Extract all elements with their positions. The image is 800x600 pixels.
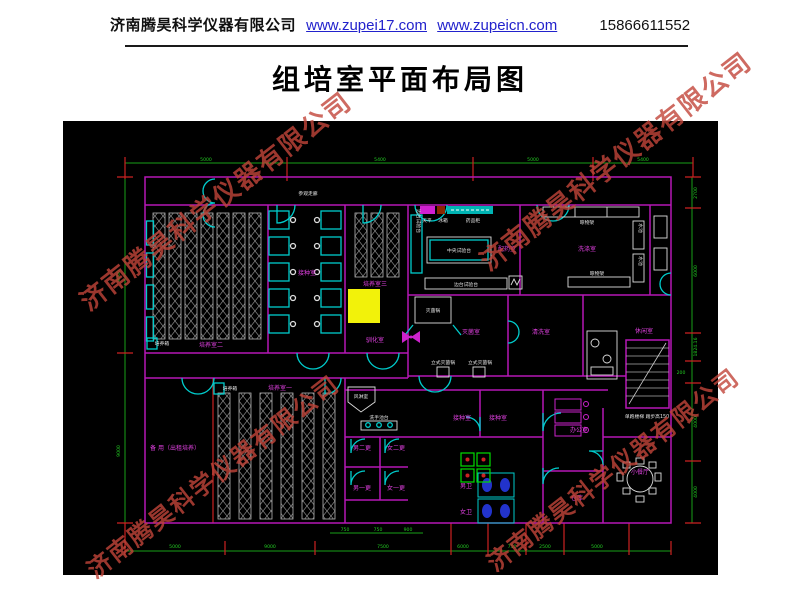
plan-label: 5400 [637, 157, 649, 163]
label-inoculation-room-a: 接种室 [453, 414, 471, 422]
laminar-hood [321, 237, 341, 255]
plan-label: 药品柜 [466, 217, 481, 224]
plan-label: 晾物架 [580, 219, 595, 226]
label-rinse-room: 清洗室 [532, 328, 550, 336]
culture-racks [153, 213, 399, 519]
plan-label: 4000 [693, 416, 699, 428]
plan-label: 5000 [200, 157, 212, 163]
plan-label: 200 [677, 370, 686, 376]
prep-room-icons [420, 206, 493, 214]
label-inoculation-room-b: 接种室 [489, 414, 507, 422]
label-media-prep-room: 配药室 [498, 245, 516, 253]
incubator [147, 253, 154, 277]
label-sterilization-room: 灭菌室 [462, 328, 480, 336]
label-culture-room-2: 培养室二 [199, 341, 223, 349]
incubator [147, 221, 154, 245]
plan-label: 750 [508, 544, 517, 550]
label-viewing-corridor: 参观走廊 [298, 190, 317, 197]
label-women-toilet: 女卫 [460, 508, 472, 516]
label-dining-room: 小餐厅 [631, 468, 649, 476]
label-spare-room: 备 用（出租培养） [150, 444, 200, 452]
plan-label: 2500 [539, 544, 551, 550]
plan-label: 4000 [693, 486, 699, 498]
plan-label: 边台试验台 [415, 209, 422, 233]
laminar-hood [269, 263, 289, 281]
drying-rack [568, 277, 630, 287]
label-acclimation-room: 驯化室 [366, 336, 384, 344]
incubator [147, 285, 154, 309]
drying-rack [543, 207, 639, 217]
label-storage: 仓库 [571, 494, 583, 502]
plan-label: 1824.16 [693, 337, 699, 356]
company-name: 济南腾昊科学仪器有限公司 [110, 17, 296, 34]
plan-label: 单跑楼梯 踏步高150 [625, 413, 669, 420]
plan-label: 灭菌锅 [426, 307, 441, 314]
plan-label: 5000 [591, 544, 603, 550]
link-zupeicn[interactable]: www.zupeicn.com [437, 17, 557, 34]
laminar-hood [321, 289, 341, 307]
laminar-hood [321, 315, 341, 333]
plan-label: 天平 [422, 218, 432, 224]
laminar-hood [269, 237, 289, 255]
laminar-hood [269, 315, 289, 333]
link-zupei17[interactable]: www.zupei17.com [306, 17, 427, 34]
toilet-fixtures [478, 473, 514, 523]
plan-label: 培养箱 [223, 385, 238, 392]
label-culture-room-3: 培养室三 [363, 280, 387, 288]
plan-label: 9000 [116, 270, 122, 282]
plan-label: 750 [341, 527, 350, 533]
fan-symbol [402, 331, 420, 343]
plan-label: 培养箱 [155, 340, 170, 347]
label-women-change-2: 女二更 [387, 444, 405, 452]
plan-label: 6000 [457, 544, 469, 550]
plan-label: 晾物架 [590, 270, 605, 277]
plan-label: 冰箱 [438, 217, 448, 224]
plan-label: 5400 [374, 157, 386, 163]
plan-label: 750 [374, 527, 383, 533]
header-divider [125, 45, 688, 47]
plan-label: 立式灭菌锅 [431, 359, 455, 366]
page-title: 组培室平面布局图 [0, 58, 800, 98]
laminar-hood [269, 289, 289, 307]
plan-label: 水池 [637, 256, 644, 266]
plan-label: 风淋室 [354, 393, 369, 400]
plan-label: 水池 [637, 223, 644, 233]
slide-background: 济南腾昊科学仪器有限公司 www.zupei17.com www.zupeicn… [0, 0, 800, 600]
laminar-hood [321, 211, 341, 229]
label-women-change-1: 女一更 [387, 484, 405, 492]
plan-label: 边台试验台 [454, 281, 478, 288]
plan-label: 7500 [377, 544, 389, 550]
water-purifier [587, 331, 617, 379]
plan-label: 9000 [116, 445, 122, 457]
label-men-toilet: 男卫 [460, 483, 472, 490]
phone-number: 15866611552 [599, 17, 690, 34]
highlight-rect [348, 289, 380, 323]
laminar-hood [321, 263, 341, 281]
header: 济南腾昊科学仪器有限公司 www.zupei17.com www.zupeicn… [0, 14, 800, 35]
staircase [626, 343, 669, 404]
plan-label: 6000 [693, 265, 699, 277]
plan-label: 5000 [169, 544, 181, 550]
label-culture-room-1: 培养室一 [268, 384, 292, 392]
green-equipment [461, 453, 490, 482]
label-washing-room: 洗涤室 [578, 245, 596, 253]
plan-label: 9000 [264, 544, 276, 550]
plan-label: 2700 [693, 187, 699, 199]
plan-label: 立式灭菌锅 [468, 359, 492, 366]
plan-label: 洗手池台 [369, 414, 388, 421]
label-office: 办公室 [570, 426, 588, 434]
label-lounge: 休闲室 [635, 327, 653, 335]
label-men-change-1: 男一更 [353, 485, 371, 492]
label-men-change-2: 男二更 [353, 445, 371, 452]
floor-plan-canvas: 参观走廊培养室二接种室培养室三驯化室培养室一备 用（出租培养）配药室洗涤室灭菌室… [63, 121, 718, 575]
plan-label: 中央试验台 [447, 247, 471, 254]
floor-plan-svg: 参观走廊培养室二接种室培养室三驯化室培养室一备 用（出租培养）配药室洗涤室灭菌室… [63, 121, 718, 575]
plan-label: 5000 [527, 157, 539, 163]
plan-label: 900 [404, 527, 413, 533]
label-inoculation-room: 接种室 [298, 269, 316, 277]
